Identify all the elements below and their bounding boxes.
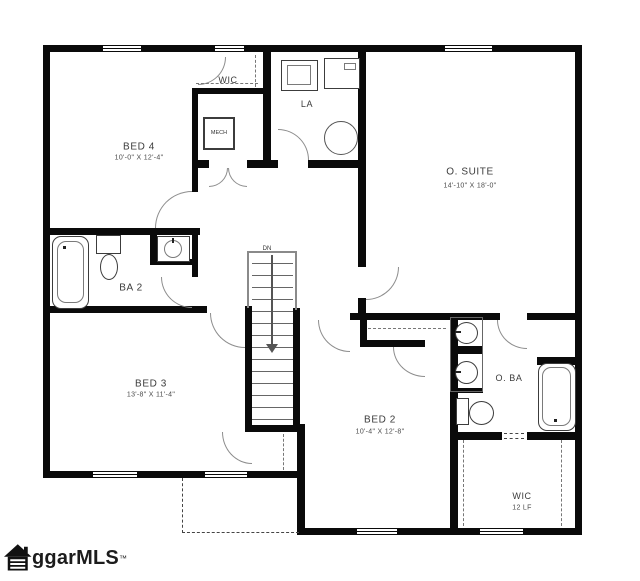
wall xyxy=(297,471,305,535)
room-label-oba: O. BA xyxy=(495,373,522,383)
door-arc-bed4 xyxy=(155,191,192,228)
bathtub-inner-line xyxy=(57,241,84,303)
cased-opening-dash xyxy=(504,433,524,434)
washer-inner xyxy=(287,65,311,85)
faucet-dot xyxy=(455,371,461,373)
stair-rail xyxy=(295,252,297,310)
room-dims-bed3: 13'-8" X 11'-4" xyxy=(127,392,175,399)
door-arc-bed2-closet xyxy=(393,347,425,377)
window xyxy=(445,45,492,52)
open-below-dash xyxy=(182,478,183,533)
stair-rail xyxy=(247,251,297,253)
room-label-wic-bottom: WIC xyxy=(512,491,531,501)
room-dims-wic-bottom: 12 LF xyxy=(512,505,531,512)
room-label-bed2: BED 2 xyxy=(364,415,396,426)
wall xyxy=(458,432,502,440)
window xyxy=(480,528,523,535)
door-arc-understair-closet xyxy=(222,432,252,464)
stair-direction-line xyxy=(271,255,273,345)
faucet-dot xyxy=(455,331,461,333)
wall xyxy=(360,340,425,347)
floor-plan: DN MECH BED 4 10'-0" X 12'-4" WIC LA O. … xyxy=(0,0,640,581)
wall xyxy=(192,232,198,277)
door-arc-mech-right xyxy=(228,168,247,187)
staircase xyxy=(252,252,293,425)
cased-opening-dash xyxy=(504,438,524,439)
window xyxy=(215,45,244,52)
room-label-laundry: LA xyxy=(301,99,313,109)
room-dims-osuite: 14'-10" X 18'-0" xyxy=(444,183,497,190)
wall xyxy=(192,88,269,94)
wall xyxy=(245,306,252,432)
door-arc-bed3 xyxy=(210,313,245,348)
window xyxy=(93,471,137,478)
wall xyxy=(297,424,305,476)
logo-text: ggarMLS xyxy=(32,547,119,570)
wall xyxy=(43,228,200,235)
door-arc-osuite xyxy=(366,267,399,300)
closet-dash-line xyxy=(283,434,284,470)
door-arc-ba2 xyxy=(161,277,192,308)
window xyxy=(103,45,141,52)
stair-rail xyxy=(247,252,249,308)
room-label-osuite: O. SUITE xyxy=(446,167,494,178)
tub-drain-dot xyxy=(554,419,557,422)
door-arc-mech-left xyxy=(209,168,228,187)
closet-dash-line xyxy=(561,440,562,526)
wall xyxy=(43,45,50,478)
bathtub-inner-line xyxy=(542,367,571,426)
wall xyxy=(297,528,582,535)
closet-dash-line xyxy=(463,440,464,526)
room-label-ba2: BA 2 xyxy=(119,283,143,294)
wall xyxy=(245,424,305,432)
room-label-wic-top: WIC xyxy=(218,75,237,85)
window xyxy=(205,471,247,478)
dryer-panel xyxy=(344,63,356,70)
door-arc-oba xyxy=(497,320,527,349)
water-heater-icon xyxy=(324,121,358,155)
open-below-dash xyxy=(182,532,299,533)
mls-logo: ggarMLS™ xyxy=(4,544,127,572)
room-label-mech: MECH xyxy=(211,130,227,136)
door-arc-laundry xyxy=(278,129,309,160)
toilet-bowl-icon xyxy=(100,254,118,280)
stair-direction-label: DN xyxy=(263,246,272,252)
room-label-bed3: BED 3 xyxy=(135,379,167,390)
toilet-bowl-icon xyxy=(469,401,494,425)
wall xyxy=(263,52,271,168)
wall xyxy=(293,308,300,432)
wall xyxy=(575,45,582,535)
stair-down-arrow-icon xyxy=(266,344,278,353)
logo-house-icon xyxy=(4,544,34,572)
room-dims-bed4: 10'-0" X 12'-4" xyxy=(115,155,164,162)
logo-trademark: ™ xyxy=(119,554,127,563)
closet-dash-line xyxy=(368,328,446,329)
wall xyxy=(192,160,209,168)
door-arc-bed2 xyxy=(318,320,350,352)
sink-icon xyxy=(455,322,478,344)
room-label-bed4: BED 4 xyxy=(123,142,155,153)
tub-drain-dot xyxy=(63,246,66,249)
window xyxy=(357,528,397,535)
toilet-tank-icon xyxy=(96,235,121,254)
wall xyxy=(527,313,575,320)
faucet-dot xyxy=(172,238,174,243)
wall xyxy=(43,471,305,478)
room-dims-bed2: 10'-4" X 12'-8" xyxy=(356,429,405,436)
wall xyxy=(527,432,575,440)
wall xyxy=(247,160,278,168)
wall xyxy=(192,88,198,192)
toilet-tank-icon xyxy=(456,398,469,425)
